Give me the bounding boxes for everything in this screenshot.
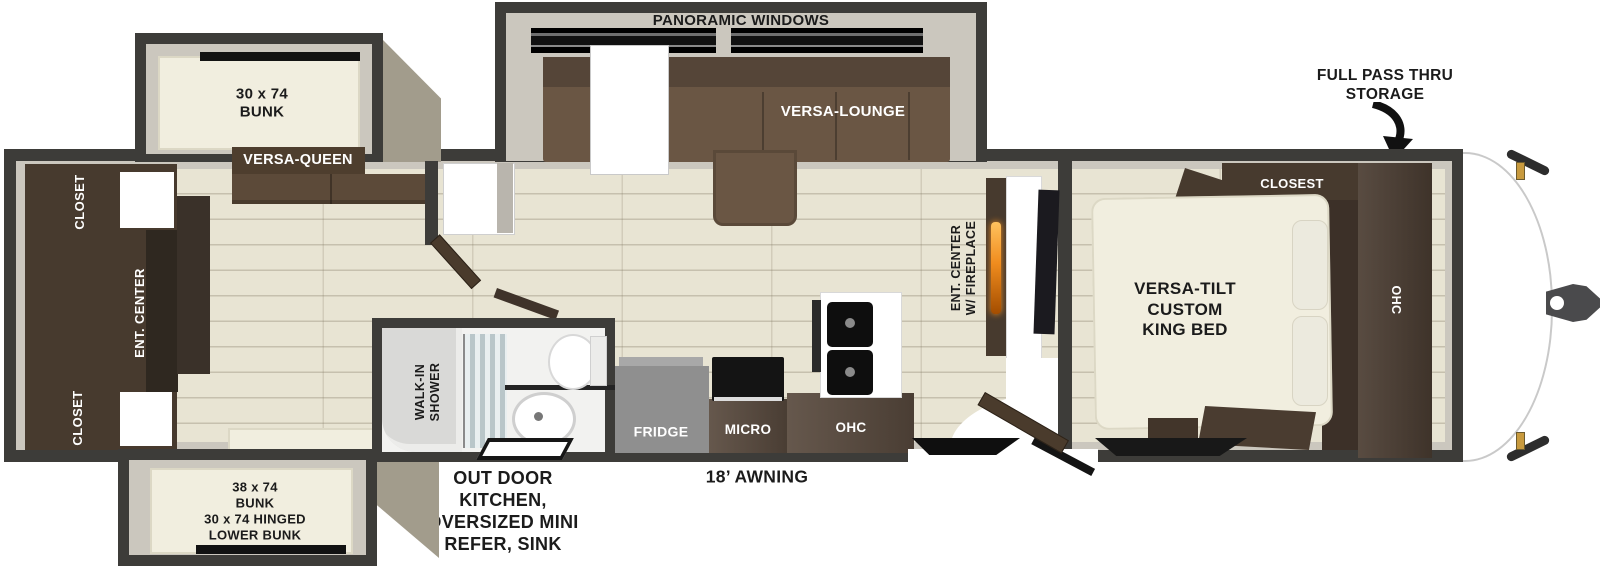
hall-cabinet-side — [497, 163, 513, 233]
label-outdoor-kitchen: OUT DOOR KITCHEN, OVERSIZED MINI REFER, … — [427, 468, 578, 556]
bedroom-wall — [1058, 161, 1072, 451]
sink-drain — [845, 318, 855, 328]
pillow — [1292, 220, 1328, 310]
cap-trim — [1505, 434, 1550, 462]
microwave-base — [714, 397, 782, 401]
label-closet-top: CLOSET — [72, 174, 88, 229]
sofa-seam — [330, 174, 332, 204]
rv-floorplan: FULL PASS THRU STORAGE OUT DOOR KITCHEN,… — [0, 0, 1600, 587]
marker-light — [1516, 432, 1525, 450]
bunk-slideout-side — [383, 40, 441, 162]
hitch-socket — [1550, 296, 1564, 310]
label-ohc-kitchen: OHC — [836, 420, 867, 436]
label-closet-bedroom: CLOSEST — [1260, 176, 1324, 192]
label-fridge: FRIDGE — [634, 423, 689, 440]
front-cap — [1463, 152, 1553, 462]
bath-mat — [476, 438, 574, 460]
bunk-window — [196, 545, 346, 554]
label-ent-center-rear: ENT. CENTER — [132, 268, 148, 358]
label-versa-queen: VERSA-QUEEN — [243, 152, 353, 170]
panoramic-window-right — [731, 28, 923, 53]
ent-center-recess — [146, 230, 178, 392]
ent-center-cabinet — [177, 196, 210, 374]
sink-drain — [534, 412, 543, 421]
label-bunk-top: 30 x 74 BUNK — [236, 86, 288, 123]
label-full-pass-thru-storage: FULL PASS THRU STORAGE — [1317, 67, 1453, 105]
marker-light — [1516, 162, 1525, 180]
label-ent-center-fireplace: ENT. CENTER W/ FIREPLACE — [949, 221, 979, 315]
label-king-bed: VERSA-TILT CUSTOM KING BED — [1134, 279, 1236, 341]
slide-shadow-wedge — [377, 462, 439, 558]
label-versa-lounge: VERSA-LOUNGE — [781, 103, 905, 121]
label-awning: 18’ AWNING — [706, 466, 809, 487]
label-closet-bottom: CLOSET — [70, 390, 86, 445]
chaise-lounge — [713, 150, 797, 226]
label-ohc-bedroom: OHC — [1389, 286, 1403, 315]
cap-trim — [1505, 148, 1550, 176]
closet-door-panel — [120, 392, 172, 446]
sink-drain — [845, 367, 855, 377]
shower-curtain — [463, 334, 507, 448]
pillow — [1292, 316, 1328, 406]
bunk-window — [200, 52, 360, 61]
microwave — [712, 357, 784, 401]
bunkroom-wall — [425, 161, 438, 245]
label-bunk-bottom: 38 x 74 BUNK 30 x 74 HINGED LOWER BUNK — [204, 479, 306, 542]
sofa-seam — [908, 92, 910, 160]
label-micro: MICRO — [725, 422, 772, 438]
label-walk-in-shower: WALK-IN SHOWER — [413, 363, 443, 422]
closet-door-panel — [120, 172, 174, 228]
dinette-table — [590, 45, 669, 175]
fireplace-flame — [991, 222, 1001, 314]
counter-divider — [812, 300, 821, 372]
versa-queen-sofa — [232, 174, 438, 204]
toilet-tank — [590, 336, 607, 386]
